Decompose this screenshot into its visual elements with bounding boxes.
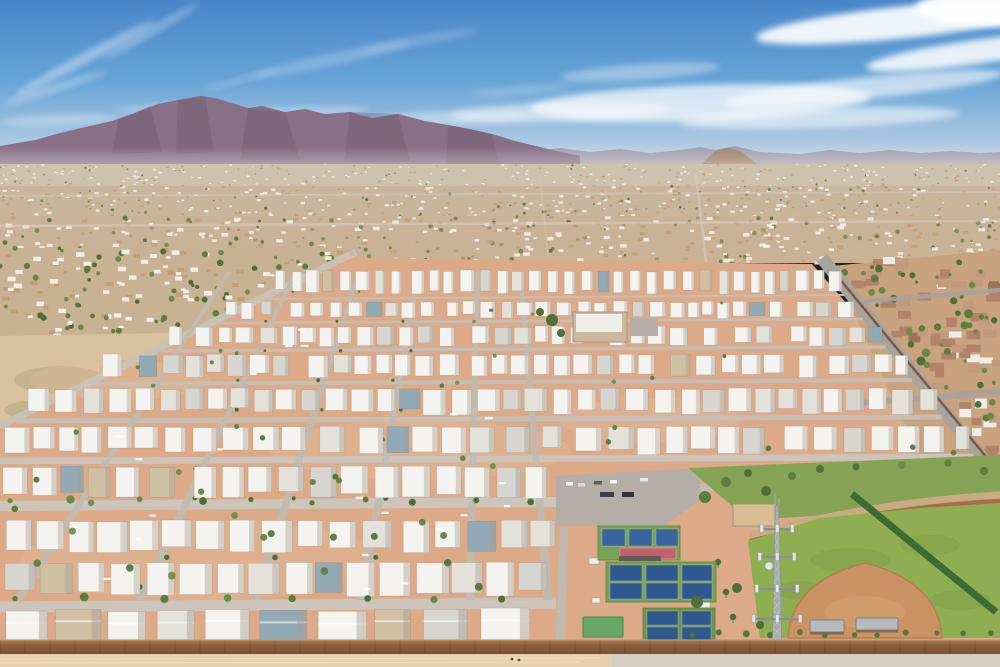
roof xyxy=(198,177,201,179)
roof xyxy=(147,202,150,204)
roof xyxy=(85,205,88,207)
tree xyxy=(58,246,61,249)
roof-shade xyxy=(383,271,385,294)
roof-shade xyxy=(315,390,319,411)
roof-shade xyxy=(720,390,725,413)
roof xyxy=(582,210,586,212)
roof xyxy=(526,188,528,189)
roof xyxy=(605,216,611,219)
roof xyxy=(825,189,829,191)
tree xyxy=(956,259,962,265)
tree xyxy=(761,486,771,496)
house xyxy=(992,360,1000,366)
tree xyxy=(756,216,760,220)
roof-shade xyxy=(682,303,685,318)
bush xyxy=(822,633,827,638)
tree xyxy=(389,246,392,249)
roof xyxy=(553,177,555,178)
bush xyxy=(960,630,966,636)
roof xyxy=(152,192,155,194)
roof xyxy=(412,218,415,220)
roof xyxy=(716,245,722,248)
tree xyxy=(679,206,682,209)
roof xyxy=(221,182,223,183)
roof xyxy=(249,231,254,234)
palm-tree xyxy=(164,555,169,560)
roof xyxy=(89,165,91,166)
roof xyxy=(55,328,61,332)
roof-shade xyxy=(743,301,746,316)
tree xyxy=(985,316,989,320)
roof xyxy=(47,184,49,185)
roof xyxy=(168,271,176,275)
roof xyxy=(190,268,198,272)
roof xyxy=(358,247,360,249)
tree xyxy=(419,519,426,526)
roof xyxy=(245,172,247,173)
roof xyxy=(140,172,142,173)
roof xyxy=(569,176,571,177)
roof xyxy=(834,170,837,172)
tree xyxy=(141,174,143,176)
court xyxy=(610,583,642,599)
roof xyxy=(786,202,789,204)
roof xyxy=(449,214,451,215)
tree xyxy=(919,325,925,331)
roof-shade xyxy=(743,272,746,291)
roof xyxy=(889,204,892,205)
roof xyxy=(984,164,987,165)
roof xyxy=(120,187,123,188)
roof xyxy=(61,193,64,194)
roof xyxy=(990,181,993,183)
roof xyxy=(382,221,385,223)
roof-shade xyxy=(396,303,399,316)
tree xyxy=(388,173,390,175)
roof xyxy=(743,206,747,208)
tree xyxy=(944,385,949,390)
parked-rv xyxy=(298,329,306,331)
roof-shade xyxy=(134,467,139,497)
tree xyxy=(234,424,239,429)
tree xyxy=(908,341,914,347)
tree xyxy=(977,382,984,389)
roof xyxy=(209,183,211,184)
roof xyxy=(539,204,542,205)
roof xyxy=(397,204,400,206)
tree xyxy=(88,200,90,202)
roof xyxy=(392,201,396,203)
roof-shade xyxy=(51,468,56,496)
roof xyxy=(229,164,232,166)
antenna-panel xyxy=(752,615,756,623)
roof xyxy=(180,214,184,216)
roof xyxy=(770,185,772,186)
roof xyxy=(589,173,592,175)
roof-shade xyxy=(176,390,180,411)
roof xyxy=(57,237,61,239)
roof xyxy=(629,208,632,210)
roof xyxy=(82,219,87,222)
roof xyxy=(118,267,126,272)
roof-shade xyxy=(550,521,555,547)
roof xyxy=(53,261,59,265)
roof-shade xyxy=(266,467,271,492)
roof-shade xyxy=(390,327,394,345)
green-roof-building xyxy=(583,617,623,637)
roof xyxy=(12,169,15,171)
roof xyxy=(516,232,521,235)
roof xyxy=(746,240,750,242)
roof xyxy=(686,194,690,196)
tree xyxy=(426,184,428,186)
roof xyxy=(722,203,726,205)
roof xyxy=(978,171,980,172)
roof xyxy=(400,203,403,204)
tree xyxy=(276,264,282,270)
roof xyxy=(11,216,16,219)
tree xyxy=(274,256,277,259)
tree xyxy=(321,567,329,575)
roof xyxy=(868,170,870,171)
roof-shade xyxy=(239,467,244,498)
tree xyxy=(557,329,565,337)
roof-shade xyxy=(385,521,391,548)
roof xyxy=(49,180,50,181)
roof xyxy=(257,245,263,248)
roof-shade xyxy=(399,271,401,293)
tree xyxy=(191,283,195,287)
court xyxy=(647,611,678,625)
tree xyxy=(875,234,879,238)
roof xyxy=(172,250,180,254)
roof xyxy=(319,218,322,220)
roof xyxy=(134,184,136,185)
roof xyxy=(62,271,67,274)
roof xyxy=(276,239,282,242)
tree xyxy=(669,169,670,170)
tree xyxy=(964,309,973,318)
roof xyxy=(153,169,156,171)
roof xyxy=(127,178,129,179)
roof xyxy=(640,225,645,228)
roof xyxy=(842,199,846,201)
tree xyxy=(780,199,782,201)
roof-shade xyxy=(524,355,528,374)
roof-shade xyxy=(758,272,760,293)
roof xyxy=(917,236,921,239)
roof xyxy=(618,236,621,238)
tree xyxy=(64,297,69,302)
roof xyxy=(269,213,272,215)
roof xyxy=(526,246,531,249)
roof xyxy=(88,199,92,201)
roof xyxy=(319,199,322,201)
tree xyxy=(80,593,89,602)
tree xyxy=(309,242,314,247)
tree xyxy=(24,263,30,269)
roof xyxy=(399,166,402,167)
tree xyxy=(989,399,996,406)
tree xyxy=(234,236,238,240)
roof xyxy=(61,171,64,172)
roof xyxy=(670,188,673,190)
roof xyxy=(858,195,861,197)
roof xyxy=(498,191,501,193)
roof-shade xyxy=(489,270,492,291)
roof xyxy=(426,181,428,182)
bush xyxy=(852,632,857,637)
roof xyxy=(7,230,13,233)
roof xyxy=(397,217,400,219)
roof xyxy=(604,236,610,239)
tree xyxy=(744,186,746,188)
roof-shade xyxy=(407,354,411,375)
tree xyxy=(906,328,913,335)
roof-shade xyxy=(631,354,634,373)
roof-shade xyxy=(99,563,105,592)
tree xyxy=(490,463,496,469)
roof xyxy=(122,186,126,188)
roof xyxy=(260,168,263,169)
roof xyxy=(118,199,120,200)
roof xyxy=(975,171,977,172)
roof xyxy=(717,164,719,165)
roof xyxy=(434,228,438,230)
roof xyxy=(578,181,580,182)
tree xyxy=(330,534,337,541)
tree xyxy=(876,204,878,206)
roof xyxy=(703,182,705,183)
house xyxy=(968,364,984,373)
roof xyxy=(436,248,439,250)
house xyxy=(951,281,967,288)
tree xyxy=(151,383,155,387)
roof xyxy=(177,268,184,272)
roof-shade xyxy=(403,610,410,645)
tree xyxy=(195,285,199,289)
house xyxy=(959,409,971,417)
roof xyxy=(525,207,529,209)
roof-shade xyxy=(50,427,55,448)
roof-shade xyxy=(651,355,654,374)
tree xyxy=(198,489,204,495)
roof xyxy=(15,270,22,274)
roof-shade xyxy=(506,271,508,294)
roof xyxy=(183,290,189,293)
parked-rv xyxy=(402,582,408,584)
roof xyxy=(255,211,258,212)
roof xyxy=(862,169,864,170)
tree xyxy=(944,348,951,355)
roof xyxy=(446,168,448,169)
roof-shade xyxy=(455,354,459,375)
roof xyxy=(631,214,635,216)
roof xyxy=(216,207,219,209)
roof xyxy=(546,172,548,173)
roof xyxy=(575,209,579,211)
parked-rv xyxy=(437,528,445,530)
roof xyxy=(214,227,219,230)
roof xyxy=(414,171,416,172)
roof xyxy=(514,202,517,204)
roof xyxy=(722,187,726,189)
roof xyxy=(523,252,530,256)
roof-shade xyxy=(727,303,730,319)
tree xyxy=(970,240,973,243)
roof xyxy=(420,184,422,185)
tree xyxy=(453,216,457,220)
roof xyxy=(301,228,305,230)
roof-shade xyxy=(298,467,303,492)
roof xyxy=(501,164,504,166)
tree xyxy=(455,381,459,385)
roof-shade xyxy=(179,355,183,373)
roof xyxy=(113,200,116,202)
roof xyxy=(512,230,515,232)
roof xyxy=(481,183,484,185)
tree xyxy=(320,251,325,256)
roof xyxy=(709,251,713,253)
roof xyxy=(322,209,325,210)
roof xyxy=(950,165,951,166)
tree xyxy=(362,197,364,199)
tree xyxy=(87,278,91,282)
roof-shade xyxy=(905,355,908,374)
bush xyxy=(743,630,750,637)
tree xyxy=(66,495,74,503)
roof xyxy=(177,201,180,202)
roof-shade xyxy=(403,562,410,595)
tree xyxy=(4,305,8,309)
tree xyxy=(132,210,134,212)
roof-shade xyxy=(746,388,751,411)
roof xyxy=(166,230,171,233)
tree xyxy=(136,365,140,369)
roof-shade xyxy=(348,327,351,343)
roof xyxy=(812,183,814,184)
roof xyxy=(727,186,729,187)
roof xyxy=(882,179,883,180)
roof xyxy=(842,168,844,169)
roof-shade xyxy=(265,355,269,373)
roof-shade xyxy=(431,302,434,316)
tree xyxy=(955,177,956,178)
roof-shade xyxy=(368,563,374,597)
roof xyxy=(966,248,973,252)
roof xyxy=(807,165,809,166)
roof xyxy=(553,200,555,201)
roof xyxy=(756,189,758,190)
house xyxy=(895,263,906,271)
roof xyxy=(920,167,923,168)
roof xyxy=(295,214,299,216)
roof xyxy=(47,212,51,214)
roof xyxy=(419,180,422,181)
tree xyxy=(122,165,123,166)
roof xyxy=(665,230,671,233)
tree xyxy=(40,199,43,202)
tree xyxy=(720,301,723,304)
vehicle xyxy=(600,492,614,497)
roof xyxy=(145,179,148,181)
roof xyxy=(492,218,495,220)
roof xyxy=(25,166,28,168)
roof xyxy=(85,207,88,208)
roof xyxy=(12,190,15,191)
roof xyxy=(555,206,558,208)
roof xyxy=(539,168,541,169)
roof-shade xyxy=(727,271,729,294)
roof xyxy=(830,209,833,211)
roof xyxy=(587,236,590,238)
roof xyxy=(368,206,370,207)
roof-shade xyxy=(557,426,561,447)
roof xyxy=(898,252,903,255)
roof xyxy=(747,261,750,263)
tree xyxy=(570,168,572,170)
roof xyxy=(799,187,802,189)
roof xyxy=(782,179,784,180)
roof xyxy=(17,165,20,167)
tree xyxy=(43,174,45,176)
roof xyxy=(103,327,108,330)
roof xyxy=(381,212,383,213)
roof xyxy=(514,227,517,229)
roof xyxy=(67,322,72,325)
roof-shade xyxy=(44,389,49,411)
roof-shade xyxy=(518,389,522,409)
roof xyxy=(151,243,157,247)
roof xyxy=(567,166,569,167)
roof xyxy=(30,182,33,183)
house xyxy=(949,332,962,338)
tree xyxy=(849,188,852,191)
roof xyxy=(597,203,601,205)
roof xyxy=(709,174,711,175)
tree xyxy=(78,304,82,308)
roof xyxy=(423,231,427,233)
roof xyxy=(476,248,479,250)
tree xyxy=(296,260,299,263)
roof xyxy=(141,273,146,276)
roof-shade xyxy=(966,426,969,449)
roof xyxy=(361,242,367,245)
roof xyxy=(1,183,3,184)
tree xyxy=(898,461,906,469)
tree xyxy=(792,186,794,188)
tree xyxy=(137,496,143,502)
palm-tree xyxy=(730,614,736,620)
roof-shade xyxy=(642,302,645,317)
tree xyxy=(302,264,308,270)
court xyxy=(610,565,642,581)
roof xyxy=(487,227,491,230)
roof xyxy=(499,206,502,208)
roof xyxy=(820,199,824,201)
roof xyxy=(256,229,259,231)
roof-shade xyxy=(760,428,765,454)
tree xyxy=(248,497,253,502)
roof xyxy=(46,203,48,205)
tree xyxy=(202,251,208,257)
tree xyxy=(288,595,295,602)
roof xyxy=(677,187,679,188)
tree xyxy=(176,469,182,475)
roof xyxy=(338,188,341,190)
roof xyxy=(583,187,586,189)
roof xyxy=(252,178,254,179)
